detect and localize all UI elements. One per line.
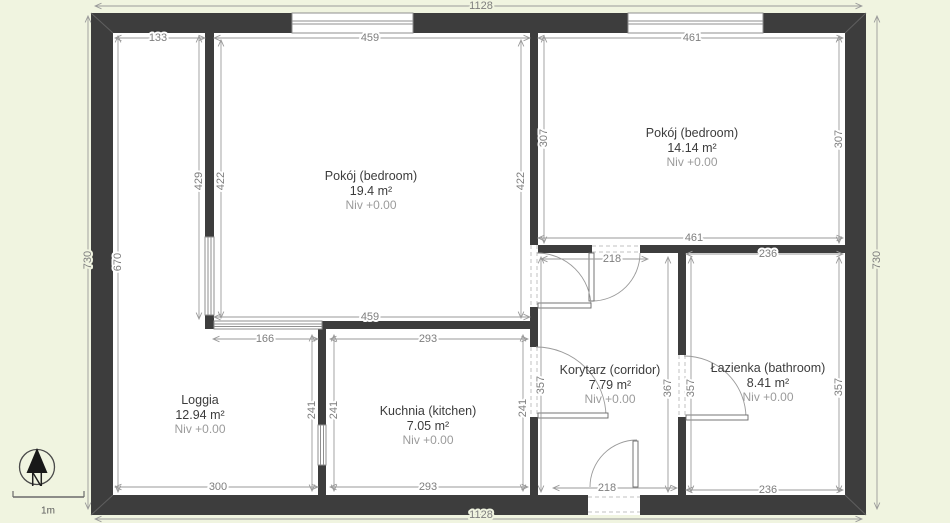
dim-loggia-strip-height: 429 (193, 172, 205, 190)
room-area-value: 7.05 m² (407, 419, 449, 433)
dim-kitchen-top: 293 (419, 333, 437, 345)
floorplan-drawing: 1128 1128 730 730 133 459 461 670 429 42… (0, 0, 950, 523)
wall-segment[interactable] (205, 33, 214, 237)
dim-top-loggia: 133 (149, 32, 167, 44)
dim-top-pokoj1: 459 (361, 32, 379, 44)
dim-corridor-door-top: 218 (603, 253, 621, 265)
room-name: Loggia (181, 393, 219, 407)
room-area-value: 14.14 m² (667, 141, 716, 155)
wall-segment[interactable] (91, 13, 113, 515)
dim-loggia-kitchen-gap: 166 (256, 333, 274, 345)
dim-pokoj1-height-left: 422 (215, 172, 227, 190)
room-level: Niv +0.00 (742, 390, 793, 404)
wall-segment[interactable] (763, 13, 866, 33)
room-name: Kuchnia (kitchen) (380, 404, 477, 418)
wall-segment[interactable] (530, 417, 538, 495)
wall-segment[interactable] (318, 465, 326, 495)
room-name: Pokój (bedroom) (325, 169, 417, 183)
room-name: Korytarz (corridor) (560, 363, 661, 377)
dim-kitchen-height-right: 241 (517, 399, 529, 417)
wall-segment[interactable] (322, 321, 538, 329)
wall-segment[interactable] (530, 307, 538, 347)
window-loggia-pokoj1-horizontal[interactable] (214, 321, 322, 329)
dim-bathroom-height-right: 357 (833, 378, 845, 396)
window-top-pokoj1[interactable] (292, 13, 413, 33)
room-level: Niv +0.00 (345, 198, 396, 212)
wall-segment[interactable] (91, 13, 292, 33)
dim-right-total: 730 (871, 251, 883, 269)
window-loggia-pokoj1-vertical[interactable] (205, 237, 214, 315)
wall-segment[interactable] (318, 329, 326, 425)
wall-segment[interactable] (538, 245, 592, 253)
room-level: Niv +0.00 (584, 392, 635, 406)
dim-bottom-loggia: 300 (209, 481, 227, 493)
wall-segment[interactable] (530, 33, 538, 245)
wall-segment[interactable] (678, 253, 686, 355)
room-area-value: 8.41 m² (747, 376, 789, 390)
dim-corridor-height-right: 367 (662, 379, 674, 397)
compass-north-label: N (31, 470, 44, 490)
dim-pokoj2-height-right: 307 (833, 130, 845, 148)
room-name: Pokój (bedroom) (646, 126, 738, 140)
dim-pokoj1-height-right: 422 (515, 172, 527, 190)
dim-pokoj2-height-left: 307 (538, 129, 550, 147)
dim-left-inner: 670 (112, 253, 124, 271)
wall-segment[interactable] (413, 13, 628, 33)
dim-top-total: 1128 (469, 0, 493, 12)
wall-segment[interactable] (640, 245, 845, 253)
dim-bathroom-top: 236 (759, 248, 777, 260)
room-area-value: 12.94 m² (175, 408, 224, 422)
dim-loggia-height: 241 (306, 401, 318, 419)
floorplan-canvas: 1128 1128 730 730 133 459 461 670 429 42… (0, 0, 950, 523)
dim-left-total: 730 (82, 251, 94, 269)
window-loggia-kitchen[interactable] (318, 425, 326, 465)
wall-segment[interactable] (678, 417, 686, 495)
dim-bottom-total: 1128 (469, 509, 493, 521)
dim-corridor-height-left: 357 (535, 376, 547, 394)
room-level: Niv +0.00 (174, 422, 225, 436)
dim-pokoj2-bottom: 461 (685, 232, 703, 244)
room-label-loggia: Loggia 12.94 m² Niv +0.00 (174, 393, 225, 436)
dim-kitchen-height-left: 241 (328, 401, 340, 419)
room-name: Łazienka (bathroom) (711, 361, 826, 375)
window-top-pokoj2[interactable] (628, 13, 763, 33)
wall-segment[interactable] (640, 495, 866, 515)
wall-segment[interactable] (205, 315, 214, 329)
dim-pokoj1-bottom: 459 (361, 311, 379, 323)
room-area-value: 19.4 m² (350, 184, 392, 198)
room-level: Niv +0.00 (402, 433, 453, 447)
room-level: Niv +0.00 (666, 155, 717, 169)
dim-bottom-kitchen: 293 (419, 481, 437, 493)
dim-entrance-door: 218 (598, 482, 616, 494)
wall-segment[interactable] (845, 13, 866, 515)
dim-bathroom-height-left: 357 (685, 379, 697, 397)
scale-bar-label: 1m (41, 506, 55, 517)
wall-segment[interactable] (91, 495, 588, 515)
dim-top-pokoj2: 461 (683, 32, 701, 44)
room-area-value: 7.79 m² (589, 378, 631, 392)
dim-bottom-bathroom: 236 (759, 484, 777, 496)
